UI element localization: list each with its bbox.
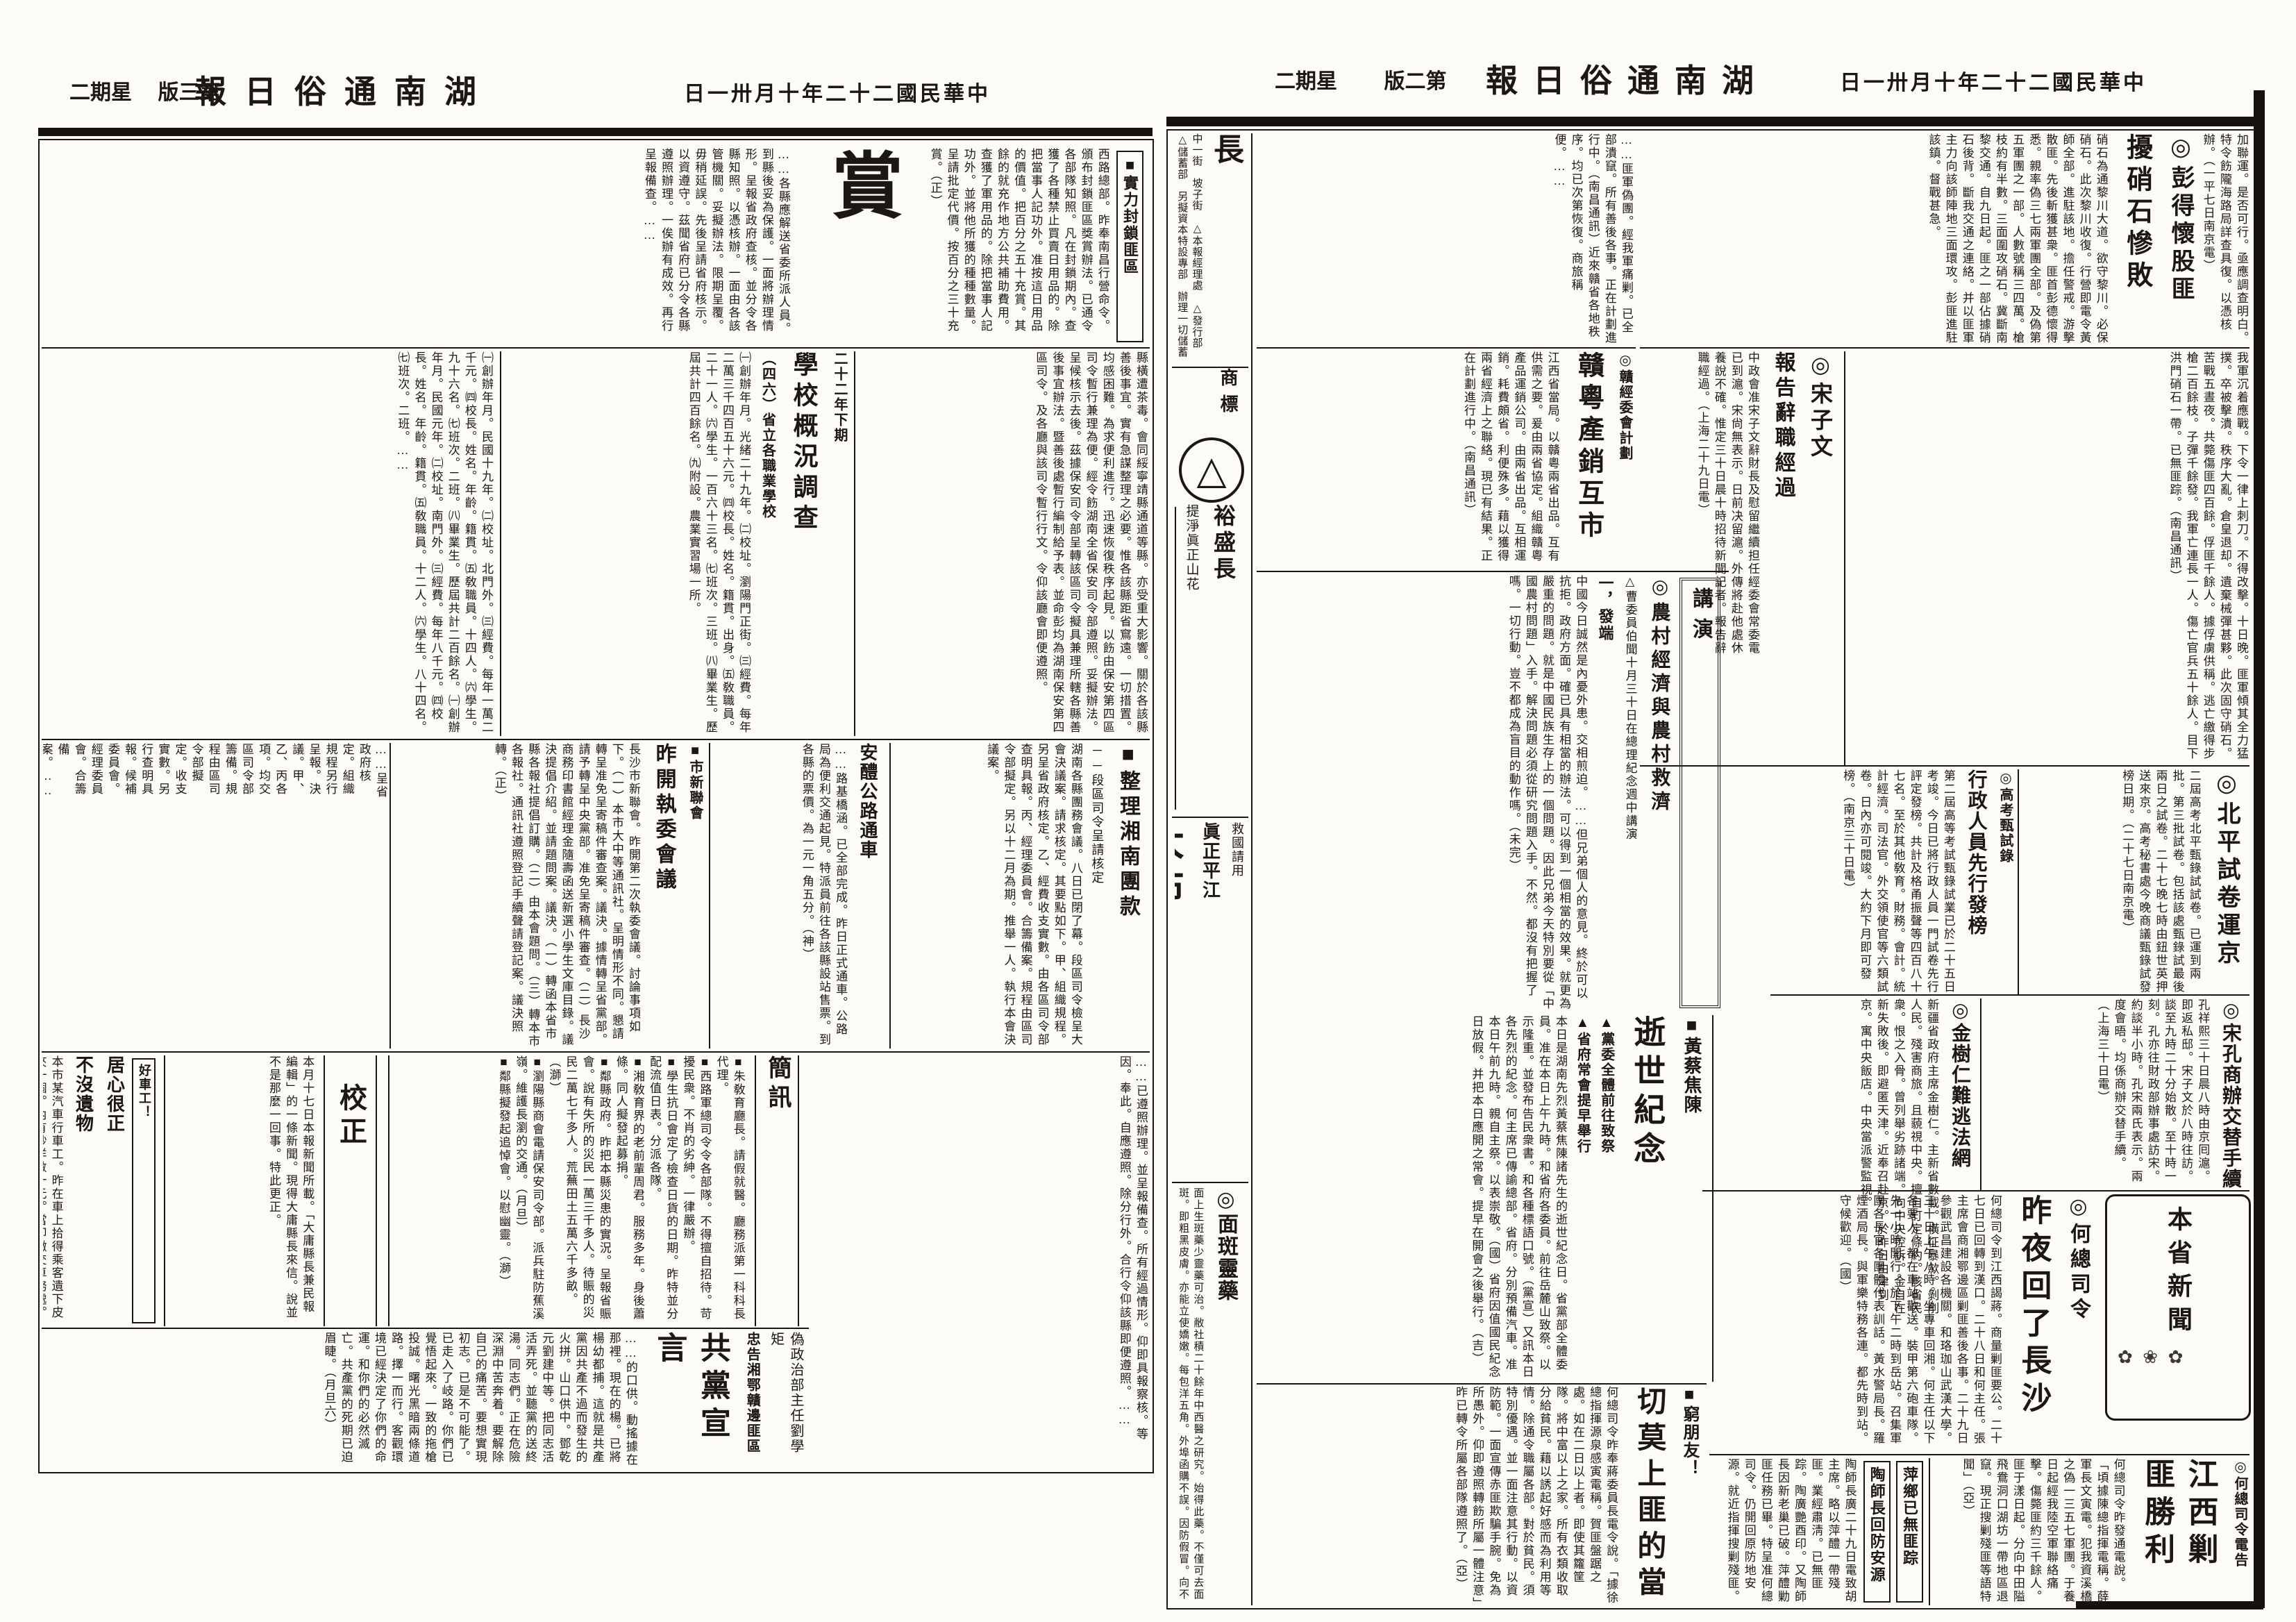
section-briefs: 簡訊 ■朱敎育廳長。請假就醫。廳務派第一科科長代理。 ■西路軍總司令令各部隊。不… — [394, 1055, 807, 1326]
article-he-returns-changsha: ◎何總司令 昨夜回了長沙 何總司令到江西謁蔣。商量剿匪要公。二十七日已回轉到漢口… — [1715, 1194, 2100, 1453]
briefs-headline: 簡訊 — [755, 1055, 799, 1326]
rule — [889, 743, 891, 1048]
he-body: 何總司令到江西謁蔣。商量剿匪要公。二十七日已回轉到漢口。二十八日和何主任。張主席… — [1836, 1194, 2003, 1453]
honest-worker-headline-2: 不沒遺物 — [70, 1055, 96, 1326]
top-left-body: ……各縣應解送省委所派人員。到縣後妥為保護。一面將辦理情形。呈報省政府查核。並分… — [641, 148, 791, 345]
rosette-marker-icon: ◎ — [1617, 351, 1632, 369]
page2-pageno: 第二版 — [1384, 70, 1447, 93]
trademark-shop-name: 裕盛長 — [1207, 504, 1239, 812]
peng-body: 硝石為通黎川大道。欲守黎川。必保硝石。此次黎川收復。行營即電令黃師全部。進駐該地… — [1925, 133, 2109, 346]
rosette-marker-icon: ◎ — [1648, 575, 1670, 602]
exam-body: 第二屆高等考試甄錄試業已於二十五日考竣。今日已將行政人員一門試卷先行評定發榜。共… — [1839, 769, 1956, 994]
jiangxi-body: 何總司令昨發通電說。「頃據陳總指揮電稱。薛軍長文寅電。犯我資溪橋之偽一三五七軍團… — [1959, 1458, 2126, 1605]
correction-body: 本月十七日本報新聞所載。「大庸縣長兼民報編輯」的一條新聞。現得大庸縣長來信。說並… — [265, 1055, 315, 1326]
reward-body: 西路總部。昨奉南昌行營命令。頒布封鎖匪區獎賞辦法。已通令各部隊知照。凡在封鎖期內… — [903, 148, 1111, 345]
rule — [1712, 1015, 1713, 1382]
highway-headline: 安醴公路通車 — [854, 743, 880, 1048]
cloth-product: 大布 — [1175, 822, 1189, 1176]
page3-weekday: 星期二 — [69, 81, 132, 104]
previous-article-tail: 加聯運。是否可行。亟應調查明白。特令飭隴海路局詳查具復。以憑核辦。（一平七日南京… — [2204, 133, 2249, 346]
page2-masthead-rule — [1166, 117, 2262, 126]
declaration-kicker-1: 偽政治部主任劉學矩 — [766, 1332, 805, 1468]
rosette-marker-icon: ◎ — [2213, 769, 2239, 801]
article-xinlianhui-meeting: ■市新聯會 昨開執委會議 長沙市新聯會。昨開第二次執委會議。討論事項如下。（一）… — [394, 743, 705, 1048]
memorial-kicker: ■黃蔡焦陳 — [1678, 1015, 1704, 1382]
rosette-marker-icon: ◎ — [2168, 133, 2193, 165]
qiong-headline: 切莫上匪的當 — [1627, 1386, 1669, 1605]
xinlian-body: 長沙市新聯會。昨開第二次執委會議。討論事項如下。（一）本市大中等通訊社。呈明情形… — [491, 743, 642, 1048]
article-martyrs-memorial: ■黃蔡焦陳 逝世紀念 ▲黨委全體前往致祭 ▲省府常會提早舉行 本日是湖南先烈黃蔡… — [1257, 1015, 1709, 1382]
article-communist-declaration: 偽政治部主任劉學矩 忠告湘鄂贛邊匪區 共黨宣言 ……的口供。動搖據在那裡。現在的… — [43, 1332, 805, 1468]
page2-weekday-pageno: 第二版 星期二 — [1275, 64, 1447, 94]
rule — [1770, 994, 2249, 996]
newspaper-colophon: 長 中一街 坡子街 △本報經理處 △發行部 △儲蓄部 另擬資本特設專部 辦理一切… — [1173, 133, 1247, 364]
brief-item: ■朱敎育廳長。請假就醫。廳務派第一科科長代理。 — [712, 1055, 746, 1326]
ad-pingjiang-cloth: 救國請用 眞正平江 大布 — [1172, 817, 1248, 1180]
qiong-body: 何總司令昨奉蔣委員長電令說。「據徐總指揮源泉感寅電稱。賀匪盤踞之處。如在二日以上… — [1452, 1386, 1619, 1605]
lecture-kicker: △曹委員伯聞十月三十日在總理紀念週中講演 — [1622, 575, 1639, 1011]
rule — [42, 347, 1150, 349]
rule — [1702, 1190, 2249, 1192]
article-school-survey: 二十二年下期 學校概況調查 （四六）省立各職業學校 ㈠創辦年月。光緒二十九年。㈡… — [505, 351, 849, 736]
brief-item: ■學生抗日會定了檢查日貨的日期。昨特並分配流值日表。分派各隊。 — [646, 1055, 679, 1326]
exam-headline: 行政人員先行發榜 — [1962, 769, 1990, 994]
rule — [854, 351, 855, 736]
school-subhead: （四六）省立各職業學校 — [757, 351, 777, 736]
rule — [1257, 571, 1729, 572]
memorial-subhead-2: ▲省府常會提早舉行 — [1573, 1015, 1592, 1382]
highway-body: ……路基橋涵。已全部完成。昨日正式通車。公路局為便利交通起見。特派員前往各該縣設… — [798, 743, 848, 1048]
rule — [1844, 351, 1845, 765]
colophon-city-big: 長 — [1204, 133, 1247, 364]
peng-headline: 擾硝石慘敗 — [2118, 133, 2155, 346]
song-kicker: ◎宋子文 — [1804, 351, 1836, 664]
rule — [164, 1055, 165, 1326]
beiping-headline: ◎北平試卷運京 — [2209, 769, 2243, 994]
rule — [389, 743, 391, 1048]
qiong-kicker: ■窮朋友！ — [1677, 1386, 1701, 1605]
article-exam-results: ◎高考甄試錄 行政人員先行發榜 第二屆高等考試甄錄試業已於二十五日考竣。今日已將… — [1640, 769, 2015, 994]
article-briefs-band-continuation: ……已遵照辦理。並呈報備查。所有經過情形。仰即具報察核。等因。奉此。自應遵照。除… — [812, 1055, 1149, 1466]
trademark-product: 三角牌棉絮 — [1175, 507, 1176, 810]
article-ganyue-trade: ◎贛經委會計劃 贛粵產銷互市 江西省當局。以贛粵兩省出品。互有供需之要。爰由兩省… — [1257, 351, 1634, 569]
memorial-subhead-1: ▲黨委全體前往致祭 — [1596, 1015, 1616, 1382]
brief-item: ■瀏陽縣商會電請保安司令部。派兵駐防蕉溪嶺。維護長瀏的交通。（月旦） — [512, 1055, 545, 1326]
rule — [1929, 1458, 1930, 1605]
honest-worker-headline-1: 居心很正 — [101, 1055, 127, 1326]
article-middle-continuation: ……匪軍偽團。經我軍痛剿。已全部潰竄。所有善後各事。正在計劃進行中。（南昌通訊）… — [1257, 133, 1634, 344]
page2-title: 湖南通俗日報 — [1486, 56, 1769, 101]
ganyue-headline: 贛粵產銷互市 — [1569, 351, 1607, 569]
rosette-marker-icon: ◎ — [2220, 998, 2241, 1023]
honest-worker-kicker: 好車工！ — [132, 1058, 156, 1323]
article-school-survey-continued: ㈠創辦年月。民國十九年。㈡校址。北門外。㈢經費。每年一萬二千元。㈣校長。姓名。年… — [43, 351, 494, 736]
article-poor-friends-warning: ■窮朋友！ 切莫上匪的當 何總司令昨奉蔣委員長電令說。「據徐總指揮源泉感寅電稱。… — [1257, 1386, 1707, 1605]
rule — [1257, 347, 1636, 349]
lecture-body: 中國今日誠然是內憂外患。交相煎迫。……但兄弟個人的意見。終於可以抗拒。政府方面。… — [1505, 575, 1589, 1011]
pingxiang-body: 陶師長廣二十九日電致胡主席。略以萍醴一帶殘匪。業經肅淸。已無匪踪。陶廣艷酉印。又… — [1724, 1458, 1858, 1605]
reward-display-char: 賞 — [823, 148, 896, 345]
lecture-section-label: 一，發端 — [1594, 575, 1616, 1011]
square-marker-icon: ■ — [1121, 156, 1139, 175]
article-jiangxi-victory: ◎何總司令電告 江西剿匪勝利 何總司令昨發通電說。「頃據陳總指揮電稱。薛軍長文寅… — [1932, 1458, 2249, 1605]
xinlian-headline: 昨開執委會議 — [648, 743, 678, 1048]
cloth-slogan: 救國請用 — [1227, 822, 1246, 1176]
memorial-body: 本日是湖南先烈黃蔡焦陳諸先生的逝世紀念日。省黨部全體委員。准在本日上午九時。和省… — [1468, 1015, 1568, 1382]
rule — [42, 1328, 809, 1329]
square-marker-icon: ■ — [1116, 743, 1139, 770]
honest-worker-body: 本市某汽車行車工。昨在車上拾得乘客遺下皮夾一個。內有鈔洋數十元。當即繳交車務處。… — [43, 1055, 65, 1326]
section-provincial-news: 本省新聞 — [2105, 1194, 2251, 1421]
school-body: ㈠創辦年月。光緒二十九年。㈡校址。瀏陽門正街。㈢經費。每年二萬三千四百五十六元。… — [685, 351, 753, 736]
peng-body-2: 我軍沉着應戰。下令一律上刺刀。不得改擊。十日晚。匪軍傾其全力猛撲。卒被擊潰。秩序… — [2165, 351, 2249, 765]
peng-kicker: ◎彭得懷股匪 — [2163, 133, 2197, 346]
rule — [1640, 347, 2249, 349]
brief-item: ■湘敎育界的老前輩周君。服務多年。身後蕭條。同人擬發起募捐。 — [612, 1055, 646, 1326]
page2-weekday: 星期二 — [1275, 70, 1337, 93]
rule — [42, 739, 1150, 740]
page3-masthead-rule — [38, 128, 1153, 136]
article-reward-blockade: ■實力封鎖匪區 西路總部。昨奉南昌行營命令。頒布封鎖匪區獎賞辦法。已通令各部隊知… — [798, 148, 1149, 345]
xinlian-kicker: ■市新聯會 — [685, 743, 705, 1048]
rosette-marker-icon: ◎ — [1808, 351, 1833, 382]
colophon-text: 中一街 坡子街 △本報經理處 △發行部 △儲蓄部 另擬資本特設專部 辦理一切儲蓄… — [1173, 133, 1204, 364]
briefs-band-body: ……已遵照辦理。並呈報備查。所有經過情形。仰即具報察核。等因。奉此。自應遵照。除… — [1116, 1055, 1149, 1466]
floral-decoration-icon: ✿ ❀ ✿ — [2118, 1347, 2236, 1368]
trademark-slogan: 提淨眞正山花 — [1182, 504, 1200, 812]
cloth-name: 眞正平江 — [1197, 822, 1223, 1176]
songkong-body: 孔祥熙三十日晨八時由京囘滬。即返私邸。宋子文於八時往訪。談至九時二十分始散。至十… — [2093, 998, 2211, 1190]
ad-trademark-towel: 商標 △ 裕盛長 提淨眞正山花 三角牌棉絮 提倡布衣救國 — [1172, 367, 1248, 815]
article-peng-dehuai-continuation: 我軍沉着應戰。下令一律上刺刀。不得改擊。十日晚。匪軍傾其全力猛撲。卒被擊潰。秩序… — [1848, 351, 2249, 765]
square-marker-icon: ■ — [687, 743, 703, 760]
rosette-marker-icon: ◎ — [1949, 998, 1970, 1023]
provincial-news-label: 本省新聞 — [2160, 1206, 2196, 1339]
rule — [1640, 765, 2249, 767]
article-tuankuan: ■整理湘南團款 ──段區司令呈請核定 湖南各縣團務會議。八日已閉了幕。段區司令檢… — [894, 743, 1149, 1048]
article-feiqu-shanhou: 縣橫遭茶毒。會同綏寧靖縣通道等縣。亦受重大影響。關於各該縣善後事宜。實有急謀整理… — [859, 351, 1149, 736]
feiqu-body: 縣橫遭茶毒。會同綏寧靖縣通道等縣。亦受重大影響。關於各該縣善後事宜。實有急謀整理… — [1032, 351, 1149, 736]
ganyue-body: 江西省當局。以贛粵兩省出品。互有供需之要。爰由兩省協定。組織贛粵產品運銷公司。由… — [1460, 351, 1561, 569]
ganyue-kicker: ◎贛經委會計劃 — [1615, 351, 1634, 569]
school-kicker: 二十二年下期 — [830, 351, 849, 736]
school-headline: 學校概況調查 — [786, 351, 821, 736]
article-top-left-continuation: ……各縣應解送省委所派人員。到縣後妥為保護。一面將辦理情形。呈報省政府查核。並分… — [43, 148, 791, 345]
he-headline: 昨夜回了長沙 — [2011, 1194, 2054, 1453]
medicine-name: ◎面斑靈藥 — [1210, 1187, 1240, 1603]
rule — [709, 743, 710, 1048]
article-pingxiang-cleared: 萍鄉已無匪踪 陶師長回防安源 陶師長廣二十九日電致胡主席。略以萍醴一帶殘匪。業經… — [1709, 1458, 1929, 1605]
tuankuan-headline: ■整理湘南團款 — [1112, 743, 1142, 1048]
article-peng-dehuai-defeat: 加聯運。是否可行。亟應調查明白。特令飭隴海路局詳查具復。以憑核辦。（一平七日南京… — [1640, 133, 2249, 346]
article-correction: 校正 本月十七日本報新聞所載。「大庸縣長兼民報編輯」的一條新聞。現得大庸縣長來信… — [168, 1055, 385, 1326]
middle-continuation-body: ……匪軍偽團。經我軍痛剿。已全部潰竄。所有善後各事。正在計劃進行中。（南昌通訊）… — [1550, 133, 1634, 344]
page2-right-edge-bar — [2254, 90, 2265, 1608]
article-highway-opening: 安醴公路通車 ……路基橋涵。已全部完成。昨日正式通車。公路局為便利交通起見。特派… — [713, 743, 885, 1048]
article-song-kong-handover: ◎宋孔商辦交替手續 孔祥熙三十日晨八時由京囘滬。即返私邸。宋子文於八時往訪。談至… — [1984, 998, 2249, 1190]
rule — [500, 351, 501, 736]
exam-kicker: ◎高考甄試錄 — [1995, 769, 2015, 994]
tuankuan-subhead: ──段區司令呈請核定 — [1088, 743, 1106, 1048]
rule — [1257, 1383, 1707, 1385]
song-headline: 報告辭職經過 — [1768, 351, 1798, 664]
pingxiang-headline-2: 陶師長回防安源 — [1863, 1461, 1891, 1603]
rule — [1980, 998, 1981, 1190]
he-kicker: ◎何總司令 — [2063, 1194, 2093, 1453]
article-resolutions-continuation: ……呈省政府核定。組織規程另行呈報。決議。甲、乙、丙各項。均交區司令部籌備。規程… — [43, 743, 389, 803]
square-marker-icon: ■ — [1680, 1386, 1698, 1405]
jiangxi-headline: 江西剿匪勝利 — [2135, 1458, 2222, 1605]
rule — [42, 1051, 1150, 1053]
pingxiang-headline-1: 萍鄉已無匪踪 — [1896, 1461, 1923, 1603]
article-beiping-exam-papers: ◎北平試卷運京 二屆高考北平甄錄試試卷。已運到兩批。第三批試卷。包括該處甄錄試最… — [2022, 769, 2249, 994]
triangle-glyph: △ — [1196, 447, 1226, 493]
jiangxi-kicker: ◎何總司令電告 — [2230, 1458, 2249, 1605]
rosette-marker-icon: ◎ — [1997, 769, 2013, 787]
page3-title: 湖南通俗日報 — [194, 67, 494, 112]
declaration-headline: 共黨宣言 — [647, 1332, 734, 1468]
declaration-body: ……的口供。動搖據在那裡。現在的楊。已將楊幼都捕。這就是共產黨因共產不過而發生的… — [321, 1332, 639, 1468]
triangle-brand-logo-icon: △ — [1179, 437, 1244, 503]
tuankuan-body: 湖南各縣團務會議。八日已閉了幕。段區司令檢呈大會決議案。請求核定。其要點如下。甲… — [983, 743, 1084, 1048]
ad-face-medicine: ◎面斑靈藥 面上生斑藥少靈藥可治。敝社積二十餘年中西醫之研究。始得此藥。不僅可去… — [1172, 1182, 1248, 1607]
square-marker-icon: ■ — [1682, 1015, 1702, 1037]
declaration-kicker-2: 忠告湘鄂贛邊匪區 — [742, 1332, 762, 1468]
reward-label: ■實力封鎖匪區 — [1116, 151, 1143, 342]
brief-item: ■鄰縣擬發起追悼會。以慰幽靈。（溮） — [495, 1055, 512, 1326]
correction-headline: 校正 — [324, 1055, 377, 1326]
trademark-label: 商標 — [1214, 368, 1240, 435]
rosette-marker-icon: ◎ — [2232, 1458, 2247, 1476]
brief-item: ■西路軍總司令令各部隊。不得擅自招待。苛擾民衆。不肖的劣紳。一律嚴辦。 — [679, 1055, 712, 1326]
school-continued-body: ㈠創辦年月。民國十九年。㈡校址。北門外。㈢經費。每年一萬二千元。㈣校長。姓名。年… — [394, 351, 494, 736]
beiping-body: 二屆高考北平甄錄試試卷。已運到兩批。第三批試卷。包括該處甄錄試最後兩日之試卷。二… — [2118, 769, 2202, 994]
brief-item: ■鄰縣政府。昨把本縣災患的實況。呈報省賑會。說有失所的災民一萬三千多人。待賑的災… — [545, 1055, 612, 1326]
songkong-headline: ◎宋孔商辦交替手續 — [2216, 998, 2244, 1190]
resolutions-body: ……呈省政府核定。組織規程另行呈報。決議。甲、乙、丙各項。均交區司令部籌備。規程… — [43, 743, 389, 803]
memorial-headline: 逝世紀念 — [1625, 1015, 1670, 1382]
rule — [2018, 769, 2019, 994]
article-honest-worker: 好車工！ 居心很正 不沒遺物 本市某汽車行車工。昨在車上拾得乘客遺下皮夾一個。內… — [43, 1055, 161, 1326]
rosette-marker-icon: ◎ — [2067, 1194, 2090, 1223]
rosette-marker-icon: ◎ — [1214, 1187, 1237, 1213]
rule — [1251, 133, 1252, 1605]
rule — [1709, 1454, 2249, 1455]
page3-date: 中華民國二十二年十月卅一日 — [684, 76, 991, 107]
medicine-body: 面上生斑藥少靈藥可治。敝社積二十餘年中西醫之研究。始得此藥。不僅可去面斑。即粗黑… — [1175, 1187, 1205, 1603]
page2-date: 中華民國二十二年十月卅一日 — [1840, 65, 2147, 96]
rule — [388, 1055, 389, 1326]
